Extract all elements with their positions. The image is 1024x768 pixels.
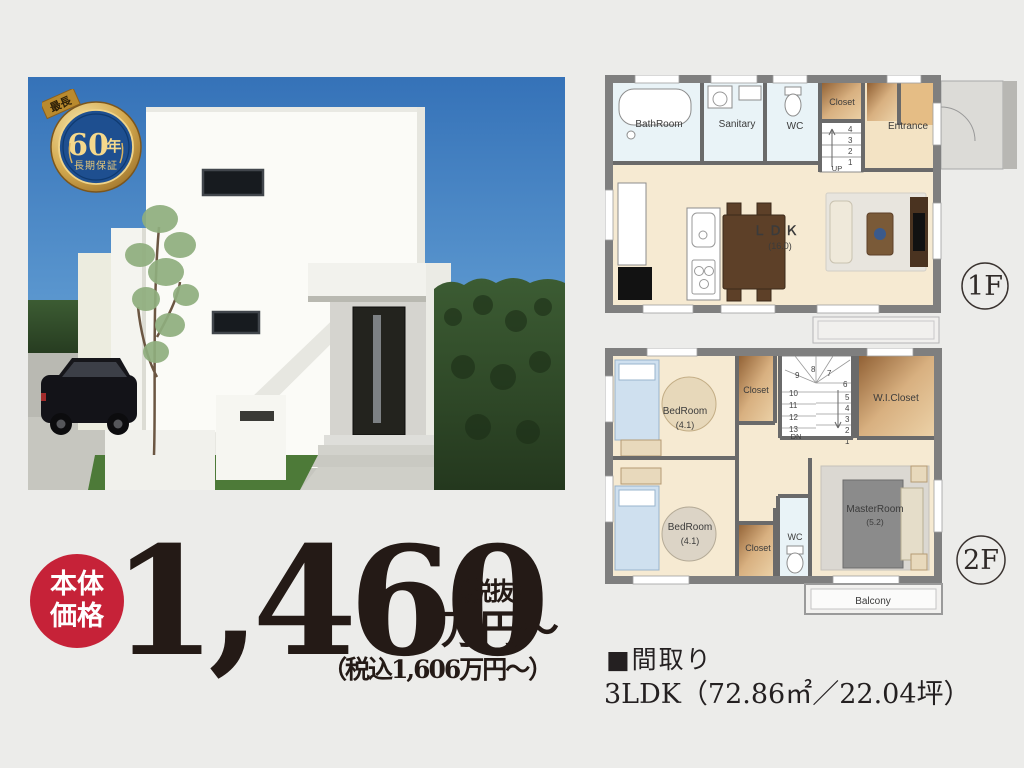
stair-number: 4 [845, 404, 850, 413]
floor-1f-label: 1F [967, 271, 1003, 302]
entrance-label: Entrance [888, 121, 928, 132]
lower-window [213, 312, 259, 333]
stair-number: 2 [848, 147, 853, 156]
bedroom2-label: BedRoom [668, 522, 712, 533]
bedroom1-size: (4.1) [676, 420, 695, 430]
stair-number: 3 [848, 136, 853, 145]
upper-window [203, 170, 263, 195]
stair-number: 5 [845, 393, 850, 402]
stair-number: 10 [789, 389, 798, 398]
closet2-label: Closet [745, 543, 771, 553]
desk [621, 440, 661, 456]
parapet [146, 107, 425, 112]
master-pillows [901, 488, 923, 560]
entrance-closet [867, 83, 897, 121]
price-label-bottom: 価格 [50, 601, 104, 633]
sanitary-label: Sanitary [719, 119, 756, 130]
door-glass [373, 315, 381, 423]
mail-slot [240, 411, 274, 421]
desk [621, 468, 661, 484]
entrance-tile [899, 83, 933, 125]
sofa [830, 201, 852, 263]
stair-number: 11 [789, 401, 798, 410]
wic-label: W.I.Closet [873, 393, 919, 404]
up-label: UP [832, 164, 842, 173]
entrance-porch [941, 81, 1017, 169]
bathroom-label: BathRoom [635, 119, 682, 130]
price-label-circle: 本体 価格 [30, 554, 124, 648]
terrace-outline [813, 317, 939, 343]
stair-number: 6 [843, 380, 848, 389]
side-table [911, 554, 927, 570]
stair-number: 1 [848, 158, 853, 167]
living-set [826, 193, 928, 271]
right-hedge [434, 278, 565, 490]
ldk-size-label: (16.0) [768, 241, 792, 251]
2f-toilet [787, 546, 803, 573]
stair-number: 8 [811, 365, 816, 374]
stair-number: 12 [789, 413, 798, 422]
stair-number: 4 [848, 125, 853, 134]
stair-number: 9 [795, 371, 800, 380]
floor-plan-1f: 4 3 2 1 [605, 75, 1020, 347]
price-unit: 万円〜 [441, 597, 558, 655]
stair-number: 3 [845, 415, 850, 424]
bedroom2-size: (4.1) [681, 536, 700, 546]
round-rug [662, 507, 716, 561]
floorplan-spec: 3LDK（72.86㎡／22.04坪） [604, 672, 971, 711]
side-table [911, 466, 927, 482]
ldk-label: ＬＤＫ [753, 223, 801, 238]
floorplan-heading: ■間取り [606, 640, 713, 676]
floor-2f-label: 2F [963, 545, 999, 576]
2f-wc-label: WC [788, 532, 803, 542]
refrigerator [618, 267, 652, 300]
badge-years-unit: 年 [106, 137, 121, 155]
toilet [785, 87, 801, 116]
floor-plan-2f: 10 11 12 13 9 8 7 6 5 4 3 2 1 BedRoom (4… [605, 348, 1020, 640]
tail-light [41, 393, 46, 401]
balcony-label: Balcony [855, 596, 891, 607]
price-tax-included: （税込1,606万円〜） [322, 650, 548, 686]
closet1-label: Closet [743, 385, 769, 395]
badge-subtitle: 長期保証 [74, 159, 118, 172]
pillow [619, 364, 655, 380]
table-decor [874, 228, 886, 240]
closet-label: Closet [829, 97, 855, 107]
pillow [619, 490, 655, 506]
stair-number: 2 [845, 426, 850, 435]
warranty-badge: 60 年 長期保証 最長 [42, 89, 146, 199]
master-label: MasterRoom [846, 504, 903, 515]
badge-years-number: 60 [67, 128, 109, 163]
bedroom1-label: BedRoom [663, 406, 707, 417]
badge-medal: 60 年 長期保証 [51, 102, 141, 192]
real-estate-flyer: { "colors": { "background": "#ececea", "… [0, 0, 1024, 768]
master-size: (5.2) [866, 517, 884, 527]
wc-label: WC [787, 121, 804, 132]
price-label-top: 本体 [50, 569, 104, 601]
dn-label: DN [791, 432, 802, 441]
dining-set [723, 203, 785, 301]
tv [913, 213, 925, 251]
stair-number: 7 [827, 369, 832, 378]
